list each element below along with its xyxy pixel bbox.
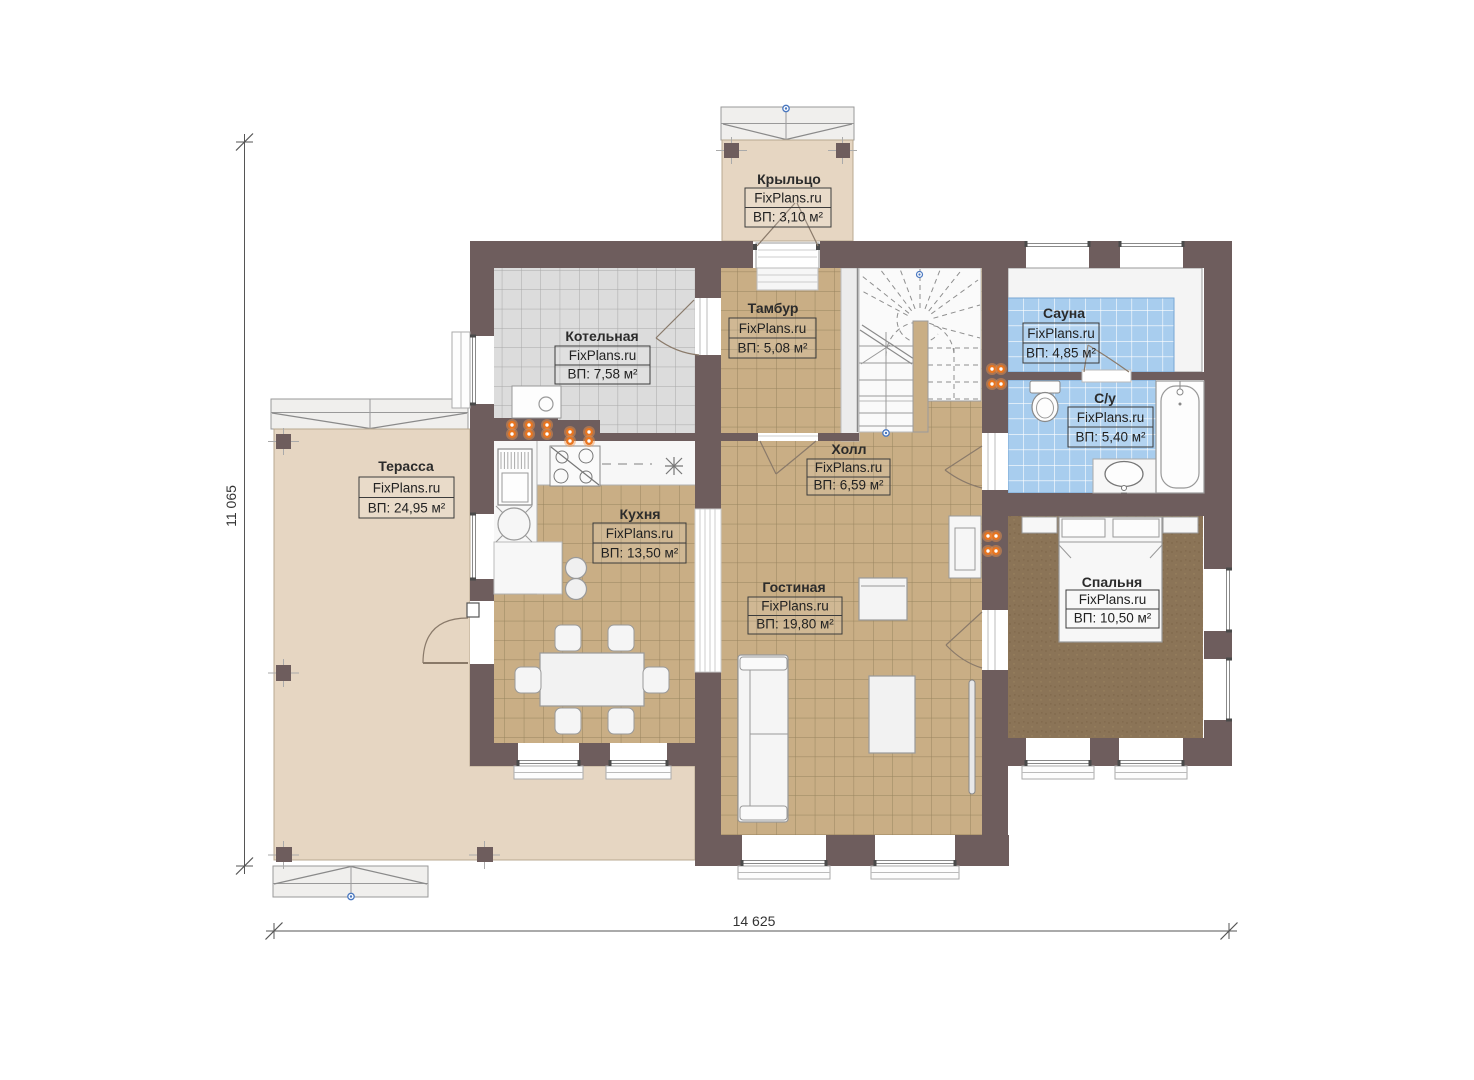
svg-text:ВП: 10,50 м²: ВП: 10,50 м²	[1074, 611, 1152, 626]
svg-text:Кухня: Кухня	[620, 506, 661, 522]
svg-text:FixPlans.ru: FixPlans.ru	[739, 321, 807, 336]
svg-text:Крыльцо: Крыльцо	[757, 171, 821, 187]
svg-text:ВП: 24,95 м²: ВП: 24,95 м²	[368, 501, 446, 516]
svg-text:14 625: 14 625	[733, 913, 776, 929]
svg-text:ВП: 13,50 м²: ВП: 13,50 м²	[601, 546, 679, 561]
svg-text:С/у: С/у	[1094, 390, 1116, 406]
svg-text:FixPlans.ru: FixPlans.ru	[1027, 326, 1095, 341]
svg-text:FixPlans.ru: FixPlans.ru	[1077, 410, 1145, 425]
svg-text:FixPlans.ru: FixPlans.ru	[815, 460, 883, 475]
svg-text:Холл: Холл	[831, 441, 866, 457]
svg-text:ВП: 5,40 м²: ВП: 5,40 м²	[1075, 430, 1146, 445]
svg-text:FixPlans.ru: FixPlans.ru	[373, 481, 441, 496]
svg-text:Сауна: Сауна	[1043, 305, 1085, 321]
svg-text:ВП: 5,08 м²: ВП: 5,08 м²	[737, 341, 808, 356]
svg-text:Терасса: Терасса	[378, 458, 434, 474]
svg-text:Котельная: Котельная	[565, 328, 638, 344]
svg-text:ВП: 7,58 м²: ВП: 7,58 м²	[567, 367, 638, 382]
svg-text:FixPlans.ru: FixPlans.ru	[754, 191, 822, 206]
svg-text:FixPlans.ru: FixPlans.ru	[1079, 592, 1147, 607]
svg-text:Гостиная: Гостиная	[762, 579, 825, 595]
svg-text:11 065: 11 065	[223, 485, 239, 527]
svg-text:ВП: 4,85 м²: ВП: 4,85 м²	[1026, 346, 1097, 361]
svg-text:FixPlans.ru: FixPlans.ru	[761, 599, 829, 614]
svg-text:FixPlans.ru: FixPlans.ru	[606, 526, 674, 541]
svg-text:ВП: 3,10 м²: ВП: 3,10 м²	[753, 210, 824, 225]
svg-text:Спальня: Спальня	[1082, 574, 1142, 590]
svg-text:Тамбур: Тамбур	[748, 300, 799, 316]
svg-text:ВП: 19,80 м²: ВП: 19,80 м²	[756, 617, 834, 632]
svg-text:FixPlans.ru: FixPlans.ru	[569, 348, 637, 363]
svg-text:ВП: 6,59 м²: ВП: 6,59 м²	[813, 478, 884, 493]
